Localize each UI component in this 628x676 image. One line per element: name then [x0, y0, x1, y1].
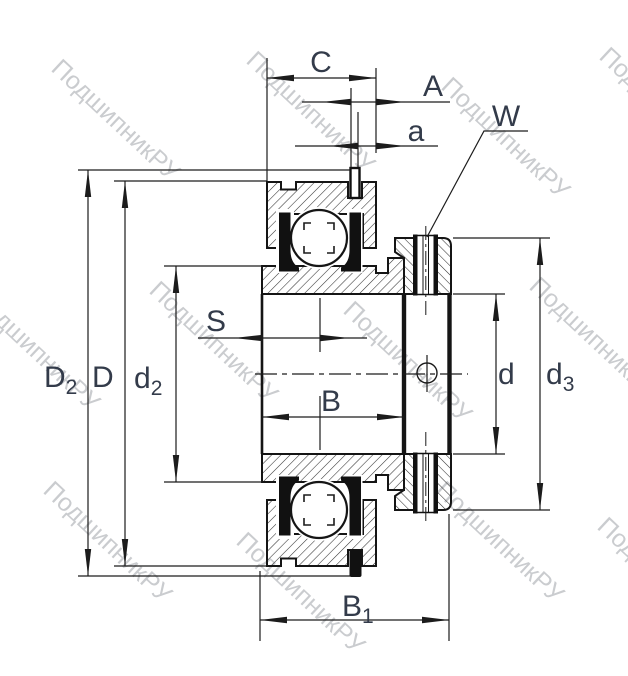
dim-label-a: a — [408, 115, 425, 148]
dim-label-d3: d3 — [546, 358, 574, 396]
bearing-drawing-page: ПодшипникРУ ПодшипникРУ ПодшипникРУ Подш… — [0, 0, 628, 676]
watermark-text: ПодшипникРУ — [592, 512, 628, 645]
dim-label-B: B — [321, 385, 341, 418]
set-screw-top — [413, 226, 438, 316]
bearing-top-half-section — [262, 168, 451, 316]
dimension-d: d — [453, 294, 515, 454]
ball-bottom — [291, 482, 347, 538]
dim-label-B1: B1 — [342, 590, 374, 628]
watermark-text: ПодшипникРУ — [338, 296, 477, 429]
locating-pin-bottom — [350, 550, 362, 577]
dim-label-d2: d2 — [134, 362, 162, 400]
dim-label-C: C — [310, 46, 332, 79]
locating-pin-top — [351, 168, 360, 198]
watermark-text: ПодшипникРУ — [594, 42, 628, 175]
set-screw-bottom — [413, 432, 438, 522]
bearing-cross-section-drawing: ПодшипникРУ ПодшипникРУ ПодшипникРУ Подш… — [0, 0, 628, 676]
dimension-B: B — [262, 385, 404, 420]
ball-top — [291, 210, 347, 266]
watermark-text: ПодшипникРУ — [436, 72, 575, 205]
dim-label-A: A — [423, 70, 443, 103]
dim-label-S: S — [206, 305, 226, 338]
dim-label-d: d — [498, 358, 515, 391]
dim-label-D: D — [92, 361, 114, 394]
bearing-bottom-half-section — [262, 432, 451, 577]
watermark-text: ПодшипникРУ — [46, 54, 185, 187]
watermark-text: ПодшипникРУ — [0, 284, 105, 417]
dim-label-W: W — [492, 100, 521, 133]
watermark-text: ПодшипникРУ — [38, 476, 177, 609]
